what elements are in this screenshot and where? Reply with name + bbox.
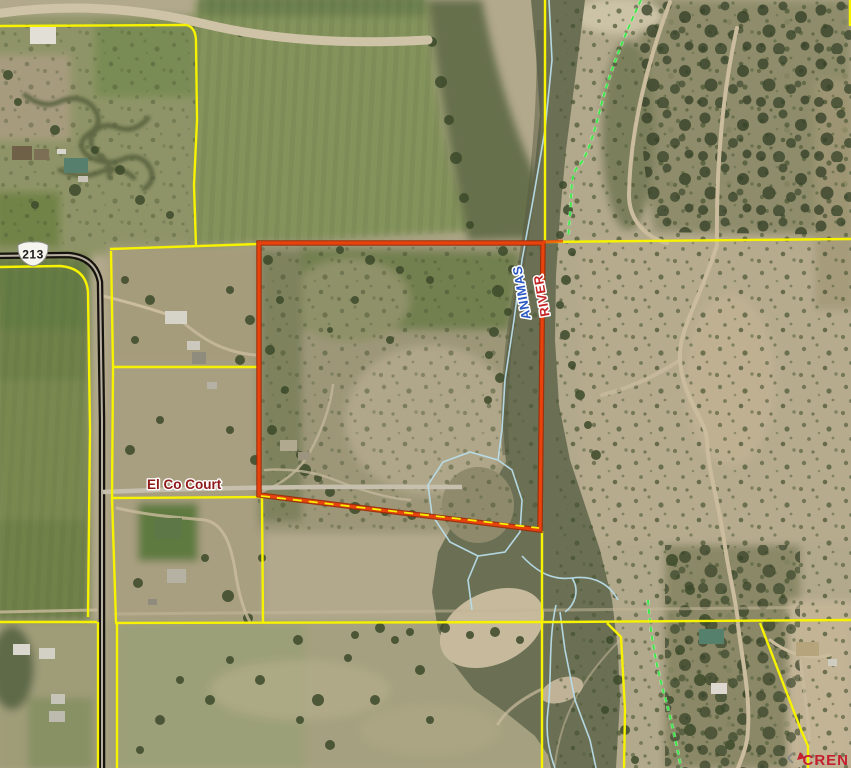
- highway-213-shield-label: 213: [22, 248, 44, 262]
- aerial-map-svg: 213 El Co Court ANIMAS RIVER CREN: [0, 0, 851, 768]
- map-canvas[interactable]: 213 El Co Court ANIMAS RIVER CREN: [0, 0, 851, 768]
- cren-watermark-label: CREN: [802, 752, 849, 768]
- street-label-el-co-court: El Co Court: [147, 477, 222, 492]
